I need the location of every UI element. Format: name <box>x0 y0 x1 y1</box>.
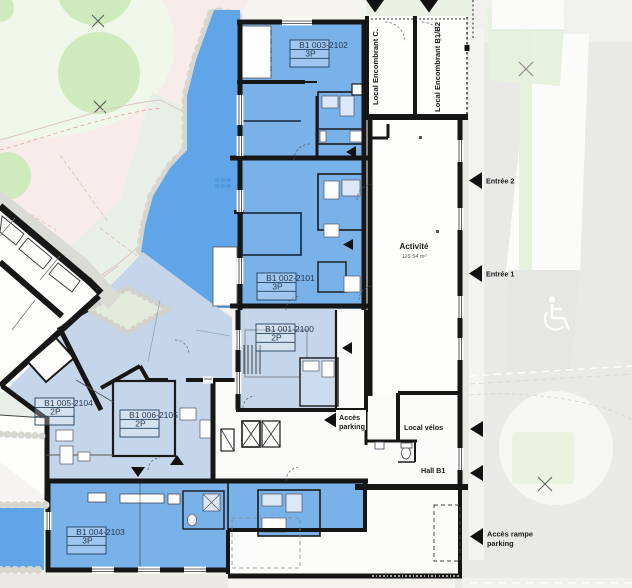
svg-text:2P: 2P <box>135 419 146 429</box>
svg-text:2P: 2P <box>50 407 61 417</box>
svg-text:parking: parking <box>339 422 365 431</box>
svg-text:Local Encombrant B1/B2: Local Encombrant B1/B2 <box>433 22 442 112</box>
svg-text:3P: 3P <box>82 536 93 546</box>
svg-text:3P: 3P <box>305 49 316 59</box>
svg-text:Accès rampe: Accès rampe <box>487 530 533 539</box>
svg-text:parking: parking <box>487 539 514 548</box>
svg-text:Local Encombrant C.: Local Encombrant C. <box>371 29 380 105</box>
svg-text:3P: 3P <box>272 282 283 292</box>
svg-text:Accès: Accès <box>339 413 360 422</box>
svg-text:Activité: Activité <box>400 242 429 251</box>
svg-text:2P: 2P <box>271 333 282 343</box>
svg-text:Entrée 1: Entrée 1 <box>486 270 514 279</box>
svg-text:Hall B1: Hall B1 <box>421 466 445 475</box>
svg-text:Local vélos: Local vélos <box>404 423 443 432</box>
svg-text:Entrée 2: Entrée 2 <box>486 177 514 186</box>
svg-text:116.54 m²: 116.54 m² <box>402 254 428 260</box>
